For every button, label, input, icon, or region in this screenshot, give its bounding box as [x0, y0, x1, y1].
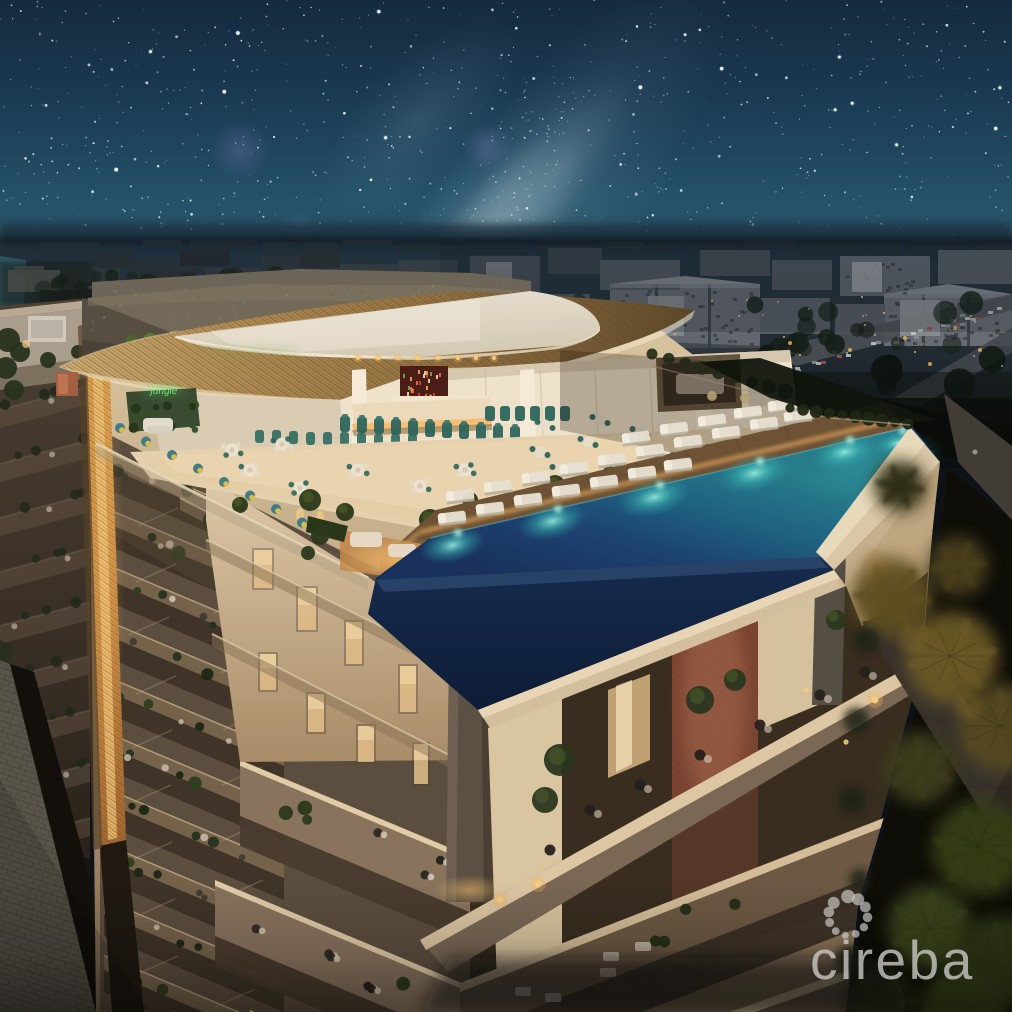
svg-text:cireba: cireba — [810, 929, 975, 991]
